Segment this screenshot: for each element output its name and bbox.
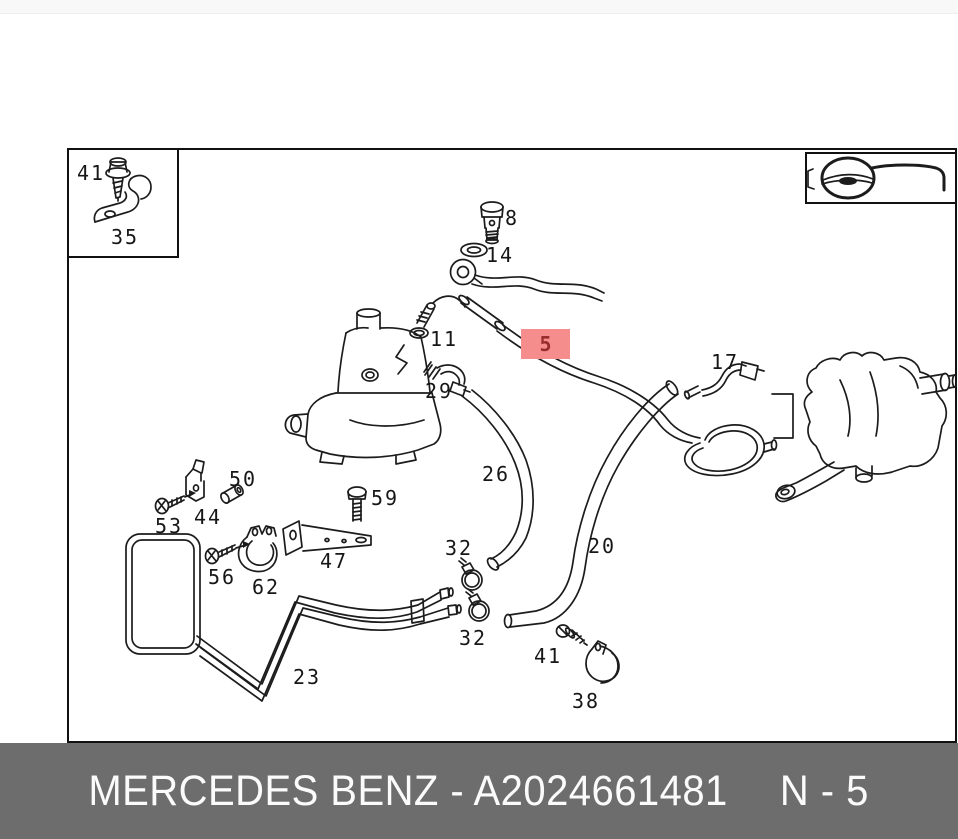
part-label-26: 26	[482, 464, 510, 484]
part-label-20: 20	[588, 536, 616, 556]
part-label-5: 5	[539, 334, 551, 354]
part-label-41-inset: 41	[77, 163, 105, 183]
clamp-62-drawing	[239, 526, 277, 571]
hose-clamp-32a-drawing	[459, 558, 482, 590]
part-label-32a: 32	[445, 538, 473, 558]
part-label-17: 17	[711, 352, 739, 372]
part-label-59: 59	[371, 488, 399, 508]
part-label-8: 8	[505, 208, 519, 228]
part-label-23: 23	[293, 667, 321, 687]
part-label-38: 38	[572, 691, 600, 711]
part-label-44: 44	[194, 507, 222, 527]
hose-clamp-32b-drawing	[466, 589, 489, 621]
part-label-32b: 32	[459, 628, 487, 648]
seal-ring-drawing	[461, 244, 487, 257]
part-label-41b: 41	[534, 646, 562, 666]
page-top-strip	[0, 0, 958, 14]
steering-gear-drawing	[776, 353, 957, 502]
power-steering-pump-drawing	[285, 309, 440, 464]
footer-banner: MERCEDES BENZ - A2024661481 N - 5	[0, 743, 958, 839]
screw-53-drawing	[156, 490, 197, 514]
banjo-bolt-drawing	[481, 202, 503, 244]
part-label-56: 56	[208, 567, 236, 587]
part-label-47: 47	[320, 551, 348, 571]
highlight-box-part-5: 5	[521, 329, 570, 359]
bolt-59-drawing	[348, 487, 366, 521]
part-label-35: 35	[111, 227, 139, 247]
steering-wheel-icon	[808, 158, 944, 198]
part-label-53: 53	[155, 516, 183, 536]
part-label-50: 50	[229, 469, 257, 489]
part-label-14: 14	[486, 245, 514, 265]
screw-56-drawing	[206, 541, 251, 564]
parts-catalog-page: 5 41 35 8 14 11 29 17 26 20 32 32 50 44 …	[0, 0, 958, 839]
pressure-hose-5-drawing	[417, 294, 793, 476]
clamp-38-drawing	[586, 641, 619, 683]
part-label-29: 29	[425, 381, 453, 401]
banjo-fitting-hose-drawing	[451, 260, 605, 302]
screw-41b-drawing	[557, 625, 588, 645]
part-label-11: 11	[430, 329, 458, 349]
return-hose-20-drawing	[505, 379, 680, 627]
exploded-parts-drawing	[67, 148, 957, 743]
footer-page-code: N - 5	[780, 767, 869, 816]
part-label-62: 62	[252, 577, 280, 597]
footer-brand-partnumber: MERCEDES BENZ - A2024661481	[89, 767, 728, 816]
